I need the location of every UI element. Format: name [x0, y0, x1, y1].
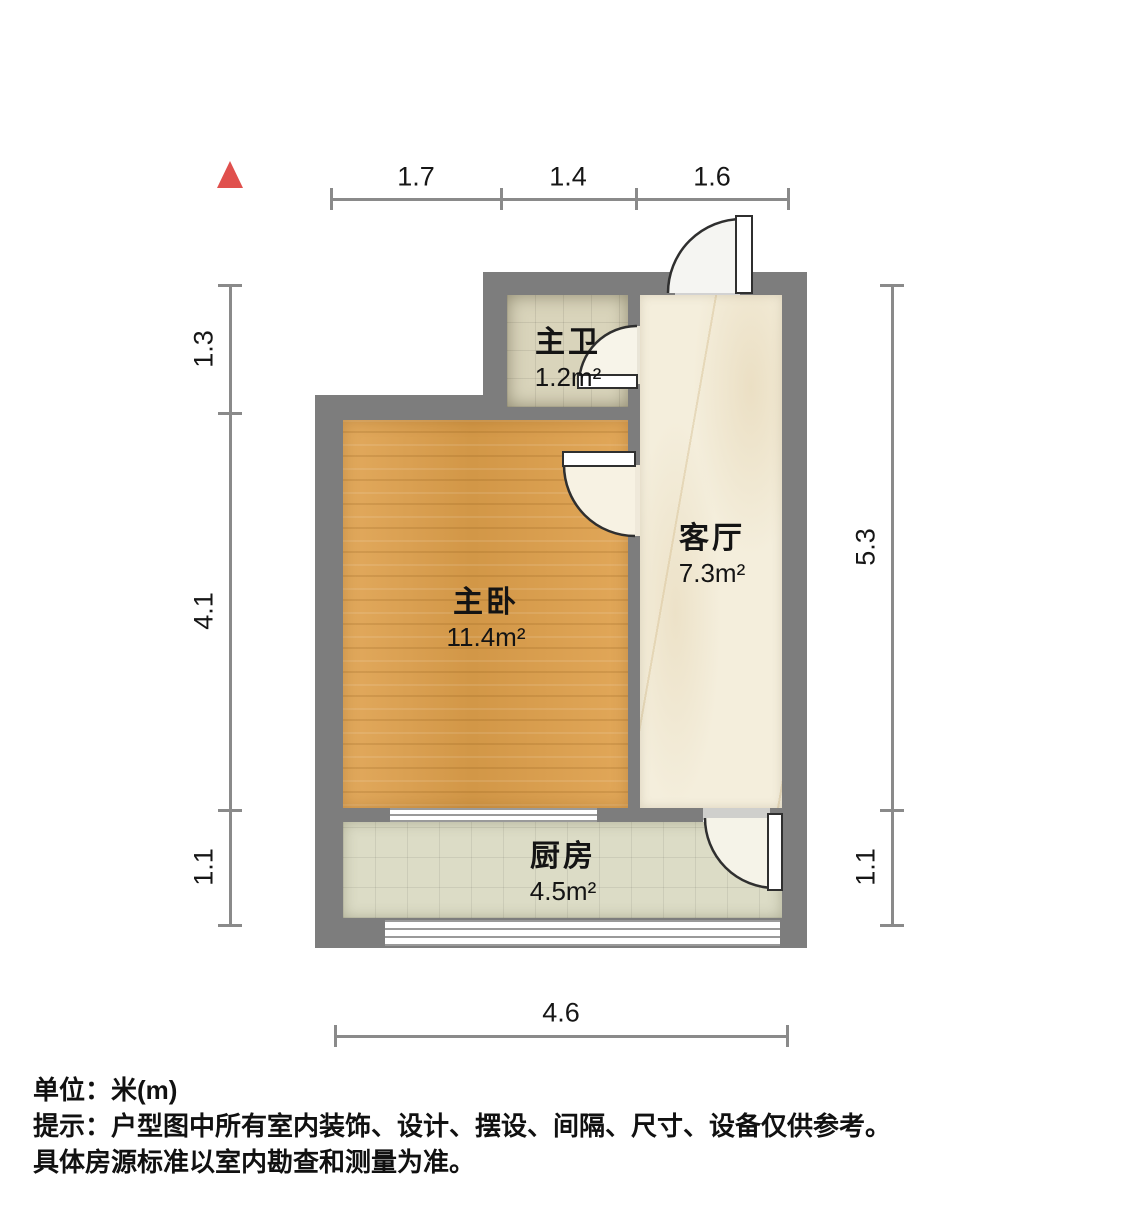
footer-notes: 单位：米(m) 提示：户型图中所有室内装饰、设计、摆设、间隔、尺寸、设备仅供参考… — [33, 1072, 891, 1180]
room-area-bedroom: 11.4m² — [447, 623, 526, 652]
footer-unit-line: 单位：米(m) — [33, 1072, 891, 1108]
dim-left-3: 1.1 — [189, 848, 220, 886]
north-arrow-icon — [217, 161, 243, 188]
dim-top-2: 1.4 — [549, 162, 587, 193]
wall-kitchen-band-left — [343, 808, 390, 822]
dim-right-2: 1.1 — [851, 848, 882, 886]
dim-left-2: 4.1 — [189, 592, 220, 630]
room-label-bathroom: 主卫 1.2m² — [535, 326, 601, 392]
wall-top — [483, 272, 807, 295]
footer-note-line1: 提示：户型图中所有室内装饰、设计、摆设、间隔、尺寸、设备仅供参考。 — [33, 1108, 891, 1144]
dimension-line-right — [891, 285, 894, 925]
kitchen-doorway — [703, 808, 770, 820]
wall-step — [315, 395, 507, 420]
dim-right-1: 5.3 — [851, 528, 882, 566]
dimension-line-bottom — [335, 1035, 787, 1038]
dimension-line-left — [229, 285, 232, 925]
wall-kitchen-band-mid — [597, 808, 703, 822]
room-name-bedroom: 主卧 — [447, 586, 526, 619]
window-bedroom-kitchen-icon — [390, 808, 597, 822]
wall-kitchen-band-right — [770, 808, 782, 822]
dim-bottom-1: 4.6 — [542, 998, 580, 1029]
room-name-living: 客厅 — [679, 522, 745, 555]
dim-top-1: 1.7 — [397, 162, 435, 193]
bathroom-doorway — [628, 326, 640, 384]
room-name-kitchen: 厨房 — [530, 840, 596, 873]
room-label-bedroom: 主卧 11.4m² — [447, 586, 526, 652]
room-area-living: 7.3m² — [679, 559, 745, 588]
dim-left-1: 1.3 — [189, 330, 220, 368]
room-label-living: 客厅 7.3m² — [679, 522, 745, 588]
room-area-bathroom: 1.2m² — [535, 363, 601, 392]
wall-bathroom-bottom — [507, 407, 640, 420]
room-label-kitchen: 厨房 4.5m² — [530, 840, 596, 906]
wall-right — [782, 272, 807, 948]
dim-top-3: 1.6 — [693, 162, 731, 193]
footer-note-line2: 具体房源标准以室内勘查和测量为准。 — [33, 1144, 891, 1180]
entry-threshold — [675, 272, 740, 295]
bedroom-doorway — [628, 465, 640, 536]
dimension-line-top — [331, 198, 788, 201]
room-area-kitchen: 4.5m² — [530, 877, 596, 906]
wall-left — [315, 395, 343, 948]
window-bottom-icon — [385, 920, 780, 946]
room-name-bathroom: 主卫 — [535, 326, 601, 359]
floorplan-canvas: 主卫 1.2m² 客厅 7.3m² 主卧 11.4m² 厨房 4.5m² 1.7… — [0, 0, 1125, 1215]
